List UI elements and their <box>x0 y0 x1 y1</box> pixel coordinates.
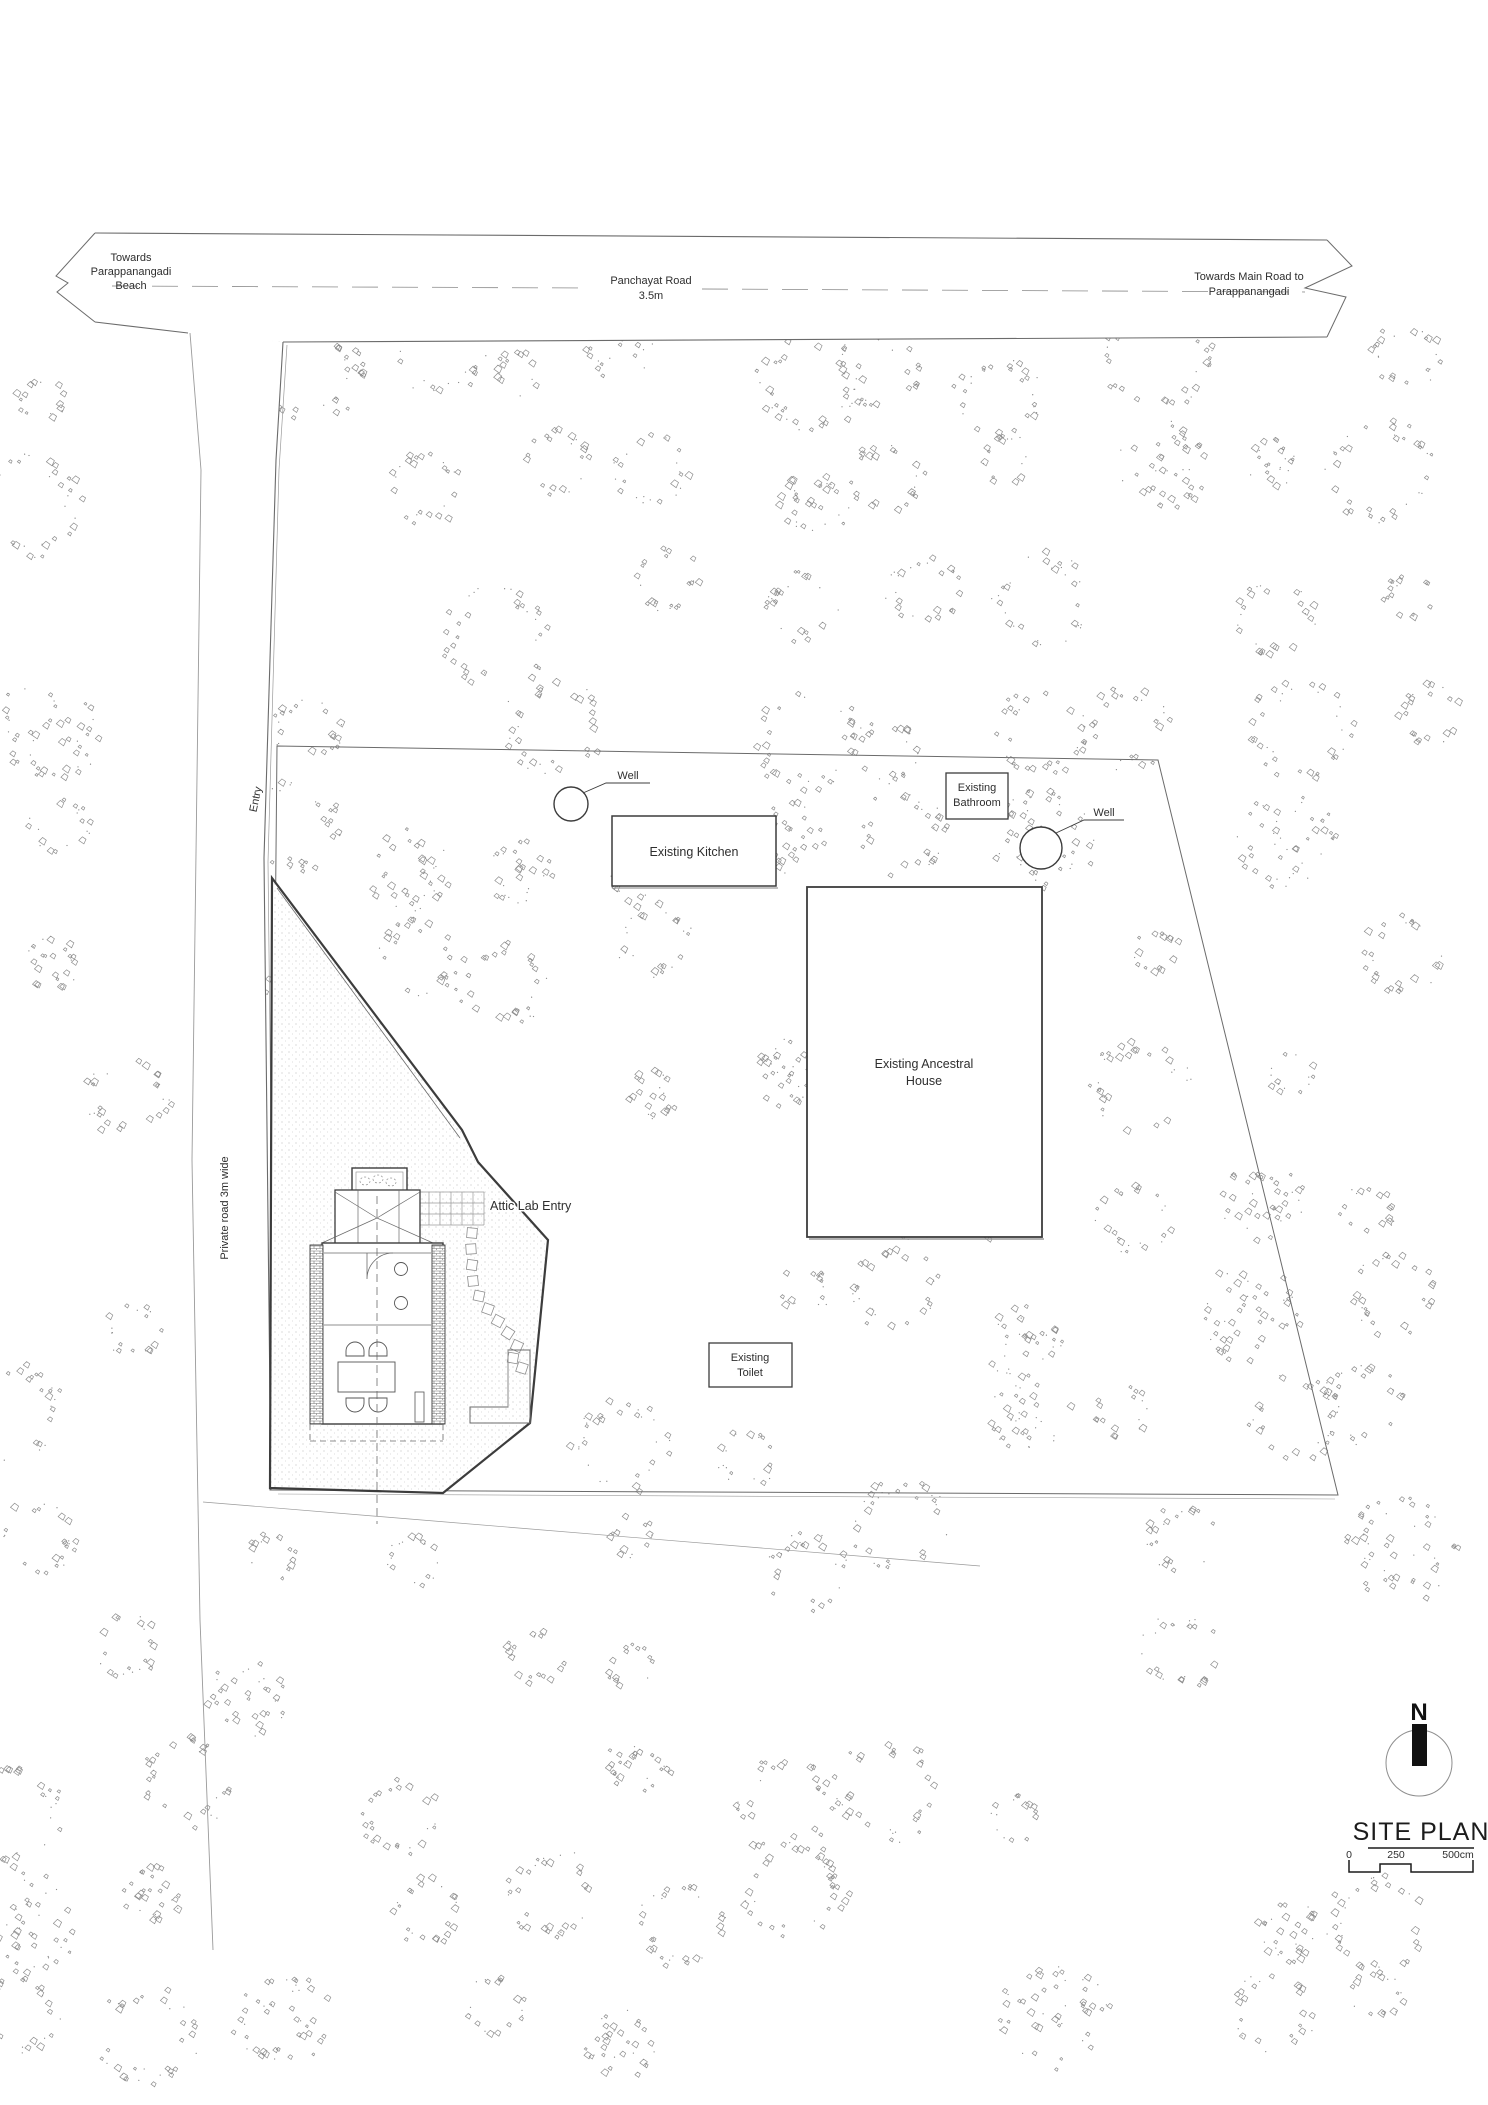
towards-beach-line1: Towards <box>111 252 152 264</box>
road-surface <box>95 233 1327 342</box>
tree-cluster <box>1135 931 1182 976</box>
tree-cluster <box>1251 437 1295 490</box>
stepping-stone <box>468 1276 479 1287</box>
bathroom-label-line1: Existing <box>958 782 997 794</box>
tree-cluster <box>994 691 1086 775</box>
chair <box>346 1398 364 1412</box>
tree-cluster <box>1220 1172 1305 1244</box>
table <box>338 1362 395 1392</box>
plot-boundary-bottom-double <box>278 1494 1335 1499</box>
house-label-line2: House <box>906 1074 942 1088</box>
tree-cluster <box>506 1853 592 1939</box>
basin-2 <box>395 1297 408 1310</box>
tree-cluster <box>505 678 600 773</box>
tree-cluster <box>1323 1364 1405 1445</box>
toilet-label-line2: Toilet <box>737 1367 763 1379</box>
road-break-left <box>56 233 95 322</box>
well-left: Well <box>554 770 650 821</box>
tree-cluster <box>764 570 838 643</box>
tree-cluster <box>1146 1506 1215 1573</box>
stepping-stone <box>507 1352 519 1364</box>
site-plan-sheet: Towards Parappanangadi Beach Panchayat R… <box>0 0 1488 2105</box>
tree-cluster <box>988 1374 1075 1448</box>
tree-cluster <box>0 1976 60 2053</box>
tree-cluster <box>249 1532 297 1580</box>
tree-cluster <box>998 1967 1112 2071</box>
well-label: Well <box>617 770 638 782</box>
tree-cluster <box>1327 1873 1423 1971</box>
tree-cluster <box>1351 1252 1437 1338</box>
north-bar <box>1412 1724 1427 1766</box>
tree-cluster <box>605 1747 674 1793</box>
scale-end: 500cm <box>1442 1849 1474 1861</box>
tree-cluster <box>361 1777 438 1856</box>
well-leader <box>583 783 650 793</box>
tree-cluster <box>1236 586 1318 658</box>
tree-cluster <box>989 1305 1064 1381</box>
tree-cluster <box>494 350 540 396</box>
tree-cluster <box>952 361 1038 440</box>
bathroom: Existing Bathroom <box>946 773 1008 819</box>
north-letter: N <box>1410 1699 1427 1726</box>
stepping-stone <box>467 1228 478 1239</box>
tree-cluster <box>388 1533 438 1588</box>
tree-cluster <box>1368 329 1443 385</box>
tree-cluster <box>1234 1974 1315 2052</box>
tree-cluster <box>754 691 866 793</box>
panchayat-road-name: Panchayat Road <box>610 275 691 287</box>
tree-cluster <box>836 334 922 408</box>
tree-cluster <box>607 1513 654 1558</box>
attic-lab-entry-label: Attic Lab Entry <box>490 1199 572 1213</box>
towards-beach-line3: Beach <box>115 280 146 292</box>
tree-cluster <box>1338 1188 1394 1234</box>
wall-east <box>432 1245 445 1424</box>
tree-cluster <box>1254 1903 1317 1965</box>
tree-cluster <box>991 1794 1038 1843</box>
tree-cluster <box>1121 421 1208 509</box>
sheet-title: SITE PLAN <box>1353 1818 1488 1846</box>
well-leader <box>1056 820 1124 833</box>
wall-west <box>310 1245 323 1424</box>
tree-cluster <box>29 936 78 990</box>
tree-cluster <box>1247 1375 1339 1461</box>
tree-cluster <box>4 1503 79 1575</box>
north-arrow: N <box>1386 1699 1452 1796</box>
tree-cluster <box>84 1058 175 1133</box>
tree-cluster <box>613 432 693 504</box>
basin-1 <box>395 1263 408 1276</box>
panchayat-road: Towards Parappanangadi Beach Panchayat R… <box>56 233 1352 342</box>
tree-cluster <box>861 792 950 878</box>
tree-cluster <box>981 434 1026 485</box>
scale-middle: 250 <box>1387 1849 1405 1861</box>
tree-cluster <box>1204 1270 1303 1364</box>
tree-cluster <box>100 1987 198 2087</box>
site-plan-drawing: Towards Parappanangadi Beach Panchayat R… <box>0 0 1488 2105</box>
toilet: Existing Toilet <box>709 1343 792 1387</box>
tree-cluster <box>1093 1385 1147 1439</box>
tree-cluster <box>634 546 703 611</box>
tree-cluster <box>1078 687 1173 770</box>
tree-cluster <box>370 828 452 911</box>
towards-main-road-line1: Towards Main Road to <box>1194 271 1303 283</box>
tree-cluster <box>1345 1497 1461 1602</box>
toilet-label-line1: Existing <box>731 1352 770 1364</box>
kitchen: Existing Kitchen <box>612 816 778 888</box>
stepping-stone <box>473 1290 485 1302</box>
kitchen-label: Existing Kitchen <box>650 845 739 859</box>
tree-cluster <box>1142 1619 1218 1687</box>
tree-cluster <box>1325 418 1433 523</box>
tree-cluster <box>992 548 1082 647</box>
tree-cluster <box>100 1614 157 1679</box>
title-block: SITE PLAN <box>1353 1818 1488 1848</box>
tree-cluster <box>733 1759 837 1853</box>
tree-cluster <box>389 452 460 525</box>
tree-cluster <box>0 689 102 781</box>
private-road-label: Private road 3m wide <box>219 1156 231 1259</box>
tree-cluster <box>584 2010 654 2077</box>
tree-cluster <box>390 1874 459 1944</box>
attic-lab-parcel: Attic Lab Entry <box>270 878 572 1524</box>
tree-cluster <box>465 1975 526 2037</box>
tree-cluster <box>639 1884 725 1968</box>
tree-cluster <box>231 1977 331 2059</box>
counter <box>415 1392 424 1422</box>
tree-cluster <box>454 940 547 1023</box>
toilet-outline <box>709 1343 792 1387</box>
tree-cluster <box>566 1398 672 1495</box>
tree-cluster <box>1237 796 1338 888</box>
stepping-stone <box>466 1259 477 1270</box>
tree-cluster <box>886 555 963 622</box>
stepping-stone <box>466 1244 477 1255</box>
tree-cluster <box>1095 1182 1174 1253</box>
tree-cluster <box>1381 575 1432 621</box>
tree-cluster <box>606 1643 655 1689</box>
chair <box>346 1342 364 1356</box>
tree-cluster <box>1362 913 1444 994</box>
tree-cluster <box>503 1628 566 1686</box>
tree-cluster <box>1248 680 1357 781</box>
chair <box>369 1342 387 1356</box>
tree-cluster <box>26 798 94 854</box>
house-label-line1: Existing Ancestral <box>875 1057 974 1071</box>
towards-main-road-line2: Parappanangadi <box>1209 286 1290 298</box>
tree-cluster <box>850 1246 940 1330</box>
tree-cluster <box>770 1531 847 1612</box>
tree-cluster <box>0 1872 75 1976</box>
well-circle <box>1020 827 1062 869</box>
tree-cluster <box>780 1270 826 1309</box>
tree-cluster <box>122 1864 182 1924</box>
tree-cluster <box>848 723 921 784</box>
tree-cluster <box>849 445 927 513</box>
tree-cluster <box>144 1734 231 1831</box>
tree-cluster <box>1268 1052 1317 1095</box>
towards-beach-line2: Parappanangadi <box>91 266 172 278</box>
tree-cluster <box>1395 680 1463 745</box>
well-right: Well <box>1020 807 1124 869</box>
tree-cluster <box>0 1765 62 1871</box>
scale-bar: 0 250 500cm <box>1346 1849 1474 1872</box>
tree-cluster <box>1350 1970 1407 2018</box>
well-label: Well <box>1093 807 1114 819</box>
tree-cluster <box>620 900 691 977</box>
panchayat-road-width: 3.5m <box>639 290 663 302</box>
well-circle <box>554 787 588 821</box>
main-block <box>322 1243 443 1424</box>
scale-bar-shape <box>1349 1860 1473 1872</box>
tree-cluster <box>106 1304 164 1354</box>
tree-cluster <box>0 1362 62 1461</box>
tree-cluster <box>626 1067 677 1118</box>
footpath-line <box>203 1502 980 1566</box>
tree-cluster <box>776 473 849 530</box>
tree-cluster <box>832 1742 937 1843</box>
scale-start: 0 <box>1346 1849 1352 1861</box>
bathroom-label-line2: Bathroom <box>953 797 1001 809</box>
tree-cluster <box>13 379 67 421</box>
tree-cluster <box>0 454 86 560</box>
tree-cluster <box>755 339 867 432</box>
tree-cluster <box>853 1481 946 1568</box>
ancestral-house: Existing Ancestral House <box>807 887 1044 1239</box>
tree-cluster <box>494 839 555 903</box>
tree-cluster <box>204 1662 285 1737</box>
tree-cluster <box>380 917 453 996</box>
tree-cluster <box>442 589 550 686</box>
chair <box>369 1398 387 1412</box>
bathroom-outline <box>946 773 1008 819</box>
tree-cluster <box>523 426 591 496</box>
tree-cluster <box>1088 1038 1191 1134</box>
tree-cluster <box>718 1430 773 1486</box>
